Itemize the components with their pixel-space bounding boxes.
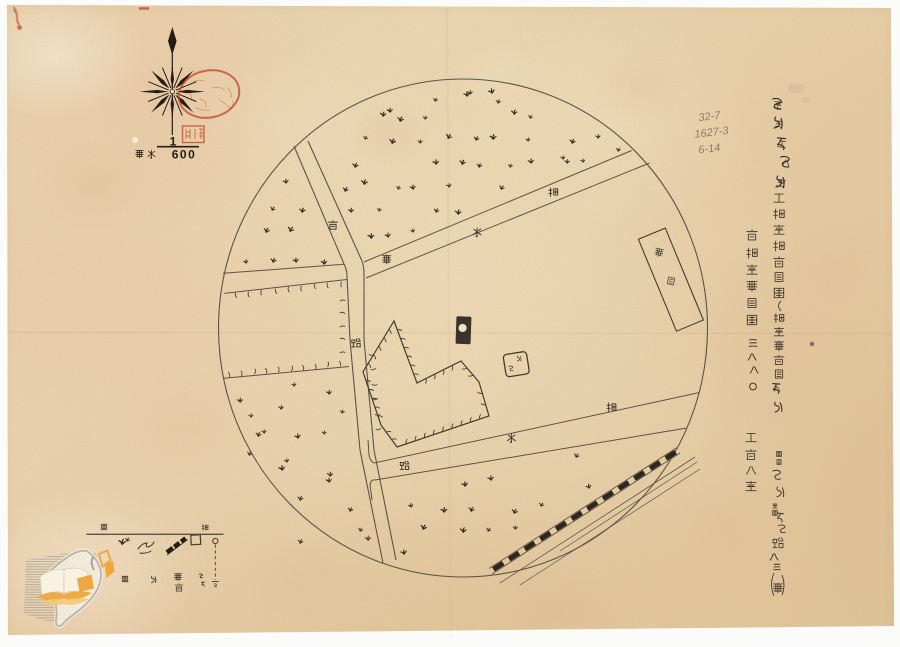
svg-text:1: 1 xyxy=(170,135,177,149)
svg-text:600: 600 xyxy=(172,148,197,162)
